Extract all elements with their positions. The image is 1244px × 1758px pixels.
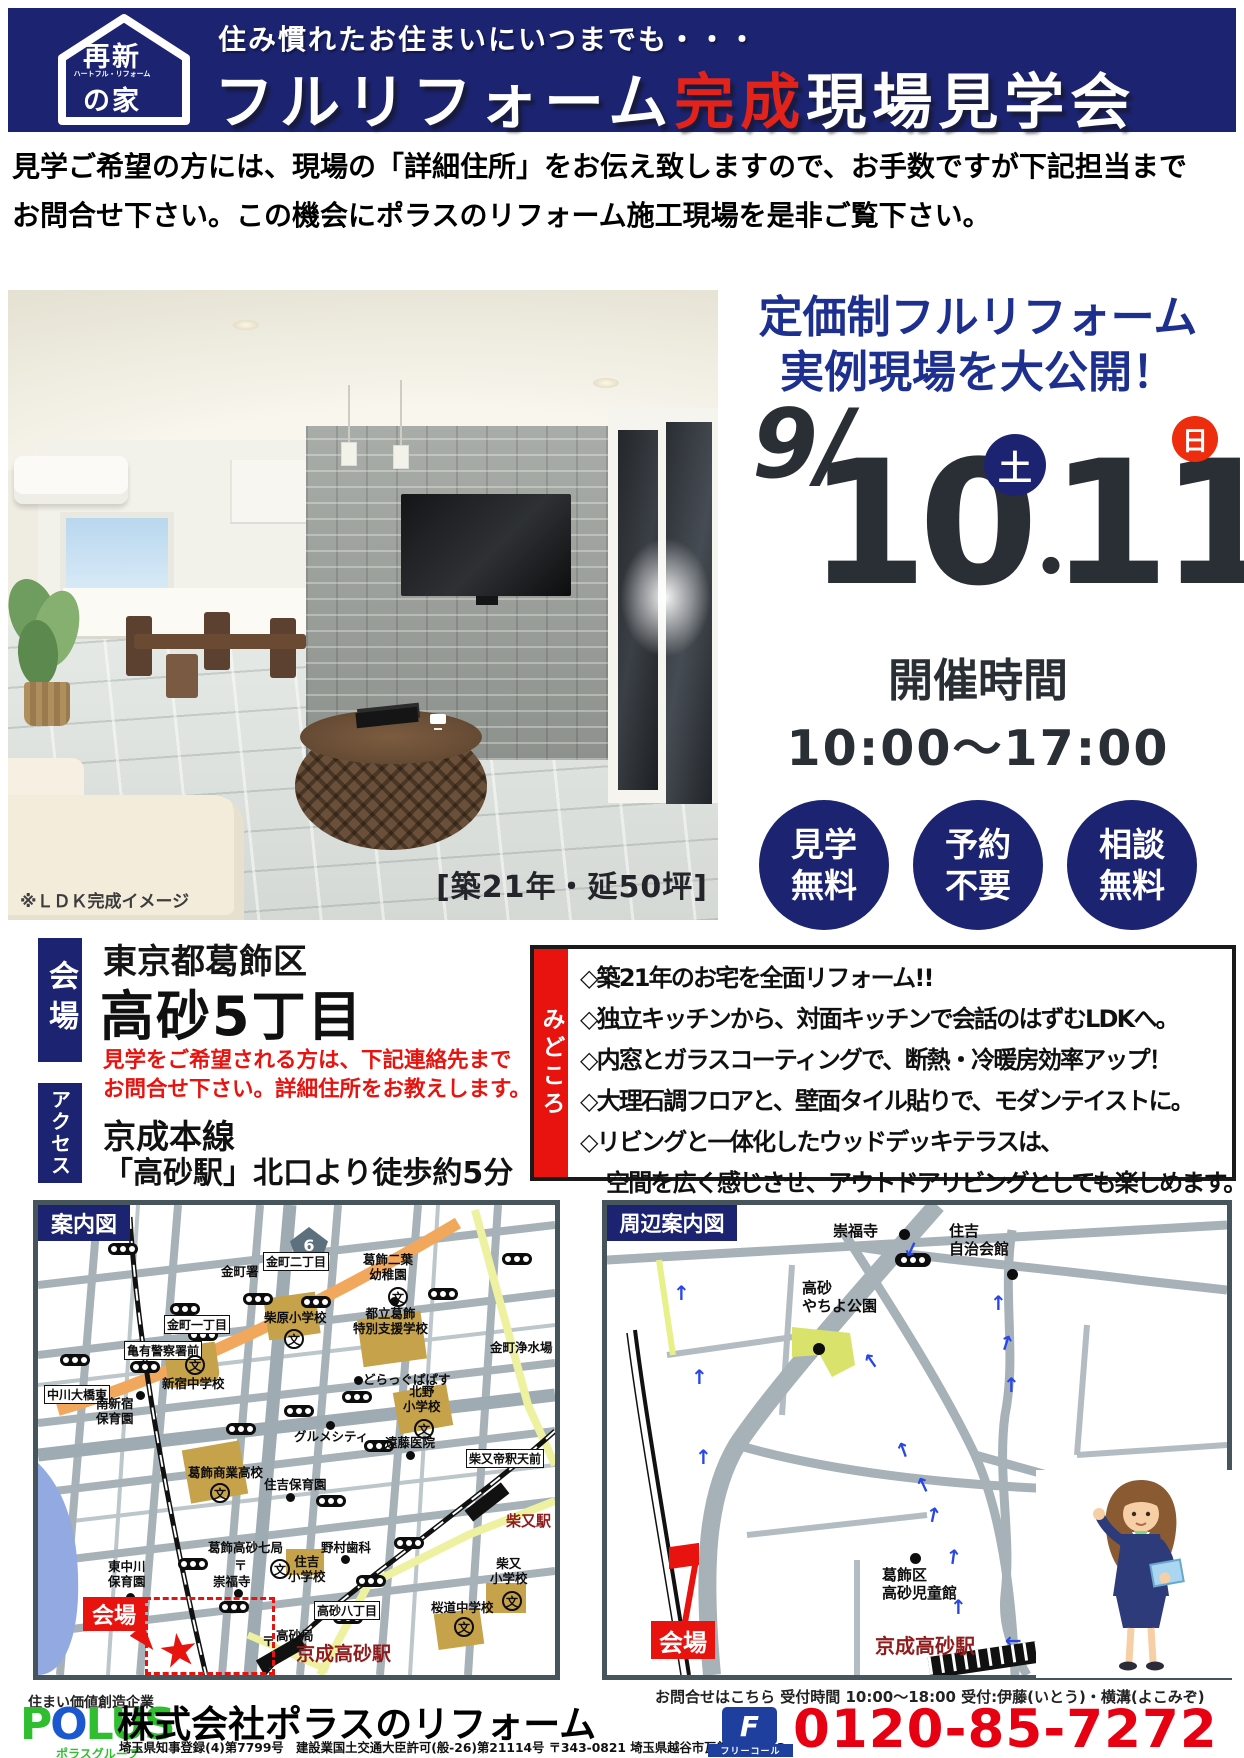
event-day-11: 11 [1050,438,1244,610]
school-icon: 文 [388,1287,408,1307]
route-arrow-icon: ↑ [695,1447,712,1467]
school-icon: 文 [270,1559,290,1579]
post-office-icon: 〒 [234,1555,247,1574]
header-banner: 再新 ハートフル・リフォーム の家 住み慣れたお住まいにいつまでも・・・ フルリ… [8,8,1236,132]
route-arrow-icon: ↑ [673,1283,690,1303]
poi-dot [813,1343,825,1355]
saishin-no-ie-logo: 再新 ハートフル・リフォーム の家 [38,13,188,127]
map-label: 葛飾商業高校 [188,1466,263,1481]
station-label: 京成高砂駅 [296,1643,391,1665]
route-arrow-icon: ↑ [950,1597,967,1617]
logo-text-bottom: の家 [50,79,174,118]
light-flare [603,515,718,680]
school-icon: 文 [454,1617,474,1637]
coffee-cup [430,714,446,724]
map-label: 住吉保育園 [264,1478,327,1493]
badge-line: 無料 [1099,865,1165,906]
highlights-list: ◇築21年のお宅を全面リフォーム!! ◇独立キッチンから、対面キッチンで会話のは… [580,958,1244,1204]
poi-dot [326,1421,335,1430]
badge-line: 予約 [945,824,1011,865]
school-icon: 文 [284,1329,304,1349]
map-label: 高砂 やちよ公園 [802,1280,877,1315]
left-map-title: 案内図 [38,1205,130,1241]
badge-line: 無料 [791,865,857,906]
tv-stand [476,596,498,605]
wall-tv [401,494,571,596]
venue-note-2: お問合せ下さい。詳細住所をお教えします。 [103,1072,531,1103]
map-label: 崇福寺 [833,1223,878,1241]
receptionist-illustration [1036,1470,1244,1678]
venue-star-icon: ★ [155,1624,202,1675]
map-label: 葛飾高砂七局 [208,1541,283,1556]
photo-caption: ※ＬＤＫ完成イメージ [20,887,189,912]
map-label: 住吉 自治会館 [949,1223,1009,1258]
map-label: 野村歯科 [321,1541,371,1556]
title-accent: 完成 [674,68,806,138]
pendant-cord [348,385,350,443]
badge-kengaku-muryo: 見学 無料 [759,800,889,930]
map-label: 金町一丁目 [164,1315,230,1334]
company-license: 埼玉県知事登録(4)第7799号 建設業国土交通大臣許可(般-26)第21114… [119,1738,785,1756]
poi-dot [286,1493,295,1502]
highlight-item: ◇大理石調フロアと、壁面タイル貼りで、モダンテイストに。 [580,1081,1244,1122]
event-dates: 9/ 10 土 ・ 11 日 [720,404,1236,636]
poi-dot [910,1553,921,1564]
poi-dot [1007,1269,1018,1280]
school-icon: 文 [502,1591,522,1611]
pendant-shade [341,442,357,466]
downlight [593,378,619,388]
school-icon: 文 [185,1355,205,1375]
highlights-box: みどころ ◇築21年のお宅を全面リフォーム!! ◇独立キッチンから、対面キッチン… [530,945,1236,1181]
freecall-label: フリーコール [708,1744,793,1757]
map-label: 葛飾区 高砂児童館 [882,1567,957,1602]
map-label: 金町署 [221,1265,259,1280]
route-arrow-icon: ↑ [944,1546,963,1568]
phone-number: 0120-85-7272 [793,1699,1218,1758]
station-label: 柴又駅 [506,1513,551,1531]
right-map-title: 周辺案内図 [607,1205,737,1241]
saturday-badge: 土 [984,434,1046,496]
intro-paragraph: 見学ご希望の方には、現場の「詳細住所」をお伝え致しますので、お手数ですが下記担当… [12,142,1238,240]
map-label: 北野 小学校 [403,1385,441,1415]
map-label: 崇福寺 [213,1575,251,1590]
poi-dot [354,1376,363,1385]
air-conditioner [14,456,128,504]
guide-map: 案内図 6 金町二丁目 葛飾二葉 幼稚園 金町署 金町一丁目 亀有警察署前 柴原… [33,1200,560,1680]
map-label: 高砂八丁目 [314,1601,380,1620]
pendant-shade [393,445,409,469]
station-label: 京成高砂駅 [875,1635,975,1659]
map-label: グルメシティ [294,1430,368,1445]
map-label: 南新宿 保育園 [96,1397,134,1427]
dining-table [134,634,306,649]
access-line-2: 「高砂駅」北口より徒歩約5分 [103,1148,513,1192]
badge-line: 不要 [945,865,1011,906]
venue-town: 高砂5丁目 [100,972,364,1051]
map-label: 東中川 保育園 [108,1560,146,1590]
poi-dot [341,1555,350,1564]
map-label: 葛飾二葉 幼稚園 [363,1253,413,1283]
flyer-page: 再新 ハートフル・リフォーム の家 住み慣れたお住まいにいつまでも・・・ フルリ… [0,0,1244,1758]
banner-title: フルリフォーム完成現場見学会 [214,54,1136,141]
poi-dot [136,1391,145,1400]
badge-yoyaku-fuyo: 予約 不要 [913,800,1043,930]
photo-spec: [築21年・延50坪] [436,862,708,906]
map-label: 住吉 小学校 [288,1555,326,1585]
access-label: アクセス [38,1083,82,1183]
map-label: 新宿中学校 [162,1377,225,1392]
logo-letter: P [20,1699,50,1750]
highlight-item: ◇独立キッチンから、対面キッチンで会話のはずむLDKへ。 [580,999,1244,1040]
ldk-render-photo: ※ＬＤＫ完成イメージ [築21年・延50坪] [8,290,718,920]
highlights-label: みどころ [534,949,568,1177]
map-label: 柴原小学校 [264,1311,327,1326]
hours-title: 開催時間 [720,644,1236,709]
logo-letter: O [50,1699,85,1750]
map-label: 遠藤医院 [385,1436,435,1451]
poi-dot [406,1451,415,1460]
freecall-icon: F [722,1707,777,1745]
route-arrow-icon: ↑ [691,1367,708,1387]
logo-text-mid: ハートフル・リフォーム [50,69,174,79]
promo-headline-1: 定価制フルリフォーム [720,290,1236,345]
hours-value: 10:00～17:00 [720,709,1236,780]
map-label: 高砂局 [276,1629,314,1644]
school-icon: 文 [210,1483,230,1503]
badge-line: 見学 [791,824,857,865]
badge-row: 見学 無料 予約 不要 相談 無料 [720,800,1236,930]
venue-note-1: 見学をご希望される方は、下記連絡先まで [103,1043,512,1074]
intro-line-1: 見学ご希望の方には、現場の「詳細住所」をお伝え致しますので、お手数ですが下記担当… [12,142,1238,191]
banner-subtitle: 住み慣れたお住まいにいつまでも・・・ [218,18,758,58]
map-label: 金町二丁目 [263,1252,329,1271]
title-pre: フルリフォーム [214,68,674,138]
badge-sodan-muryo: 相談 無料 [1067,800,1197,930]
map-label: 柴又帝釈天前 [466,1449,544,1468]
route-arrow-icon: ↑ [1003,1633,1023,1650]
badge-line: 相談 [1099,824,1165,865]
highlight-item: ◇築21年のお宅を全面リフォーム!! [580,958,1244,999]
route-arrow-icon: ↑ [1003,1375,1020,1395]
intro-line-2: お問合せ下さい。この機会にポラスのリフォーム施工現場を是非ご覧下さい。 [12,191,1238,240]
downlight [233,320,259,330]
sunday-badge: 日 [1172,416,1218,462]
map-label: 都立葛飾 特別支援学校 [353,1307,428,1337]
venue-marker-label: 会場 [651,1621,715,1659]
dining-chair [166,654,198,698]
map-label: 桜道中学校 [431,1601,494,1616]
venue-marker-label: 会場 [83,1597,145,1631]
highlight-item: ◇内窓とガラスコーティングで、断熱・冷暖房効率アップ！ [580,1040,1244,1081]
highlight-item: 空間を広く感じさせ、アウトドアリビングとしても楽しめます。 [580,1163,1244,1204]
title-post: 現場見学会 [806,68,1136,138]
promo-column: 定価制フルリフォーム 実例現場を大公開！ 9/ 10 土 ・ 11 日 開催時間… [720,290,1236,920]
highlight-item: ◇リビングと一体化したウッドデッキテラスは、 [580,1122,1244,1163]
map-label: 金町浄水場 [490,1341,553,1356]
route-arrow-icon: ↑ [990,1293,1007,1313]
plant-pot [24,682,70,726]
venue-label: 会場 [38,938,82,1062]
pendant-cord [400,380,402,446]
map-label: 柴又 小学校 [490,1557,528,1587]
